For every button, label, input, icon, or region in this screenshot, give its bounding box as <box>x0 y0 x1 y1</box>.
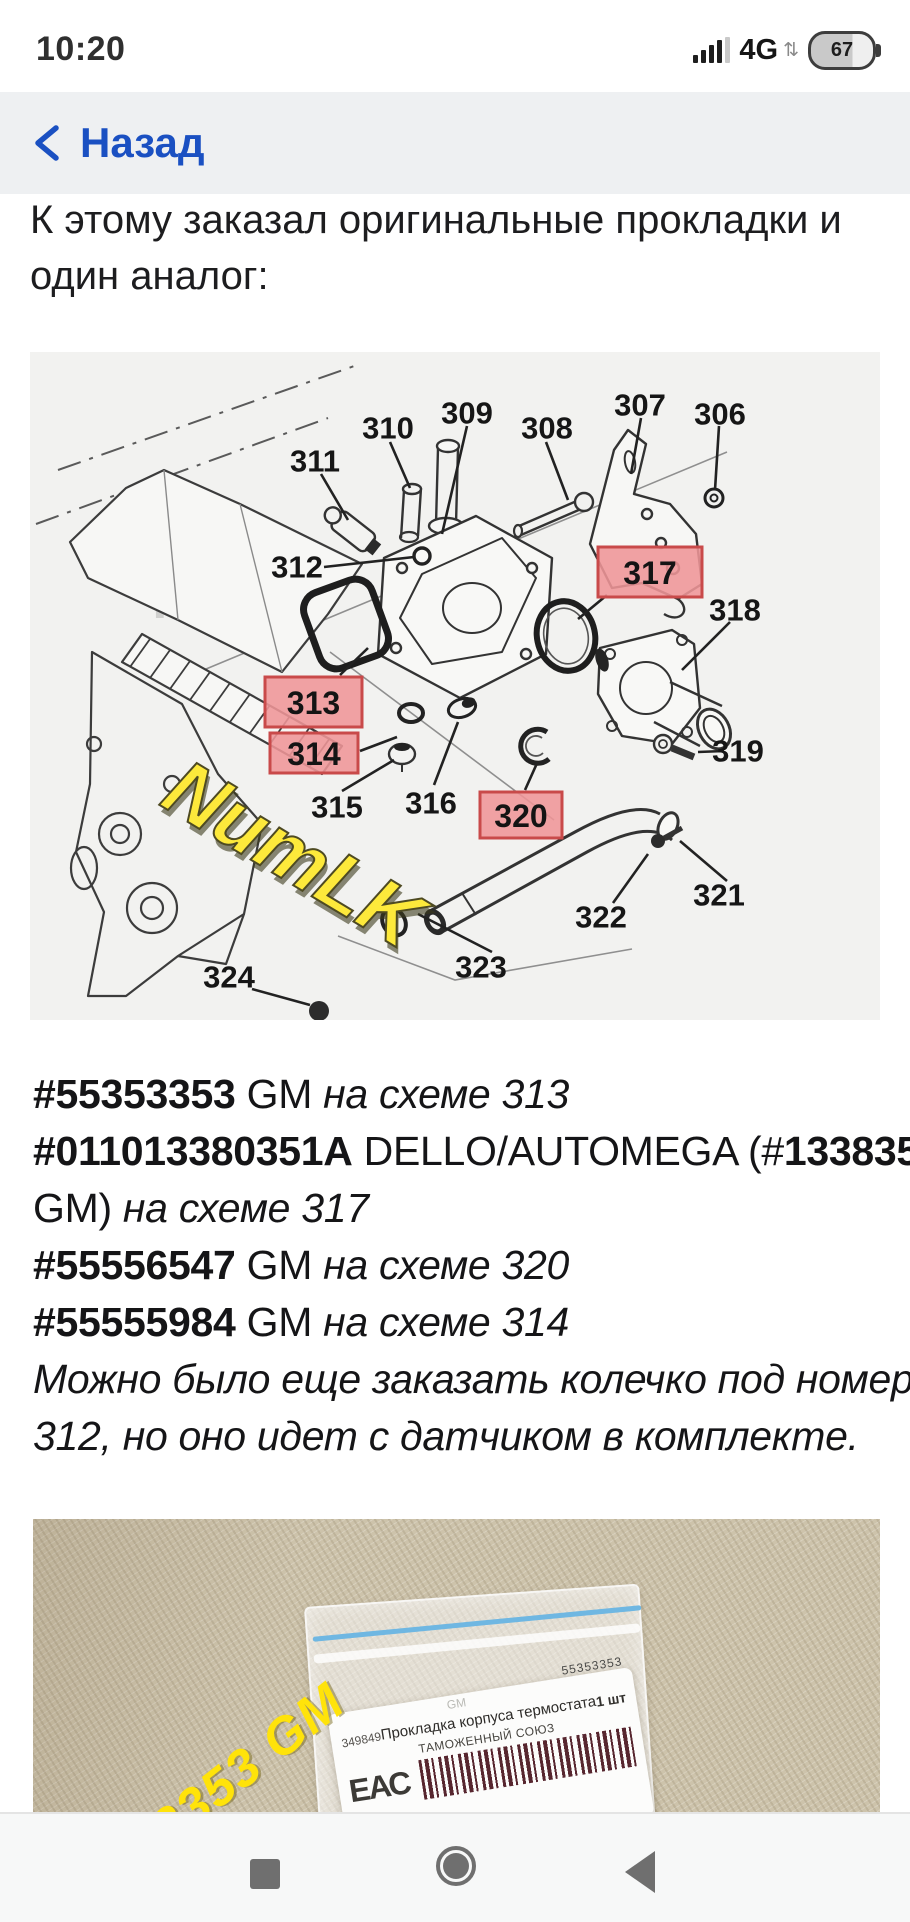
parts-list-line: GM) на схеме 317 <box>33 1180 910 1237</box>
svg-text:320: 320 <box>494 798 547 834</box>
parts-list-line: #55556547 GM на схеме 320 <box>33 1237 910 1294</box>
svg-text:308: 308 <box>521 411 573 446</box>
back-button[interactable]: Назад <box>30 119 205 167</box>
parts-list-line: 312, но оно идет с датчиком в комплекте. <box>33 1408 910 1465</box>
parts-list-line: #55555984 GM на схеме 314 <box>33 1294 910 1351</box>
parts-list-line: #011013380351A DELLO/AUTOMEGA (#1338351 <box>33 1123 910 1180</box>
chevron-left-icon <box>30 123 66 163</box>
svg-text:NumLK: NumLK <box>149 742 443 967</box>
home-button-icon[interactable] <box>436 1846 476 1886</box>
clock: 10:20 <box>36 30 125 69</box>
svg-text:306: 306 <box>694 397 746 432</box>
exploded-view-drawing: klad <box>30 352 880 1020</box>
plug-316-sketch <box>446 695 479 721</box>
battery-percent: 67 <box>831 39 853 62</box>
svg-text:310: 310 <box>362 411 414 446</box>
label-quantity: 1 шт <box>595 1689 627 1710</box>
svg-text:313: 313 <box>287 685 340 721</box>
svg-text:319: 319 <box>712 734 764 769</box>
bolt-308-sketch <box>514 493 593 537</box>
back-button-label: Назад <box>80 119 205 167</box>
photo-watermark: 55353353 GM <box>43 1671 357 1812</box>
parts-diagram-image[interactable]: klad <box>30 352 880 1020</box>
label-sku: 349849 <box>340 1729 382 1750</box>
svg-text:314: 314 <box>287 736 341 772</box>
svg-text:321: 321 <box>693 878 745 913</box>
intro-paragraph: К этому заказал оригинальные прокладки и… <box>30 192 890 304</box>
data-transfer-icon: ⇅ <box>783 41 799 60</box>
intro-line-1: К этому заказал оригинальные прокладки и <box>30 192 890 248</box>
label-brand: GM <box>446 1695 467 1712</box>
svg-text:324: 324 <box>203 960 255 995</box>
stud-324-sketch <box>309 1001 329 1020</box>
status-bar: 10:20 4G ⇅ 67 <box>0 0 910 92</box>
svg-text:317: 317 <box>623 555 676 591</box>
seal-320-sketch <box>521 729 549 763</box>
svg-text:322: 322 <box>575 900 627 935</box>
app-header: Назад <box>0 92 910 194</box>
network-type-label: 4G <box>739 34 778 67</box>
svg-text:318: 318 <box>709 593 761 628</box>
pin-310-sketch <box>400 484 421 542</box>
svg-text:316: 316 <box>405 786 457 821</box>
svg-text:311: 311 <box>290 444 340 479</box>
signal-strength-icon <box>693 37 730 63</box>
plug-315-sketch <box>389 743 415 772</box>
parts-list-line: Можно было еще заказать колечко под номе… <box>33 1351 910 1408</box>
svg-text:309: 309 <box>441 396 493 431</box>
intro-line-2: один аналог: <box>30 248 890 304</box>
back-button-icon[interactable] <box>625 1851 655 1893</box>
yellow-watermark: NumLK NumLK <box>147 742 448 974</box>
nut-306-sketch <box>705 489 723 507</box>
parts-list-line: #55353353 GM на схеме 313 <box>33 1066 910 1123</box>
parts-list-paragraph: #55353353 GM на схеме 313#011013380351A … <box>33 1066 910 1465</box>
svg-text:312: 312 <box>271 550 323 585</box>
recents-button-icon[interactable] <box>250 1859 280 1889</box>
product-photo[interactable]: 55353353 GM 349849 Прокладка корпуса тер… <box>33 1519 880 1812</box>
system-nav-bar <box>0 1812 910 1922</box>
svg-text:307: 307 <box>614 388 666 423</box>
battery-icon: 67 <box>808 31 876 70</box>
eac-logo: ЕАС <box>346 1764 412 1810</box>
thermostat-housing-sketch <box>378 440 552 698</box>
svg-text:323: 323 <box>455 950 507 985</box>
